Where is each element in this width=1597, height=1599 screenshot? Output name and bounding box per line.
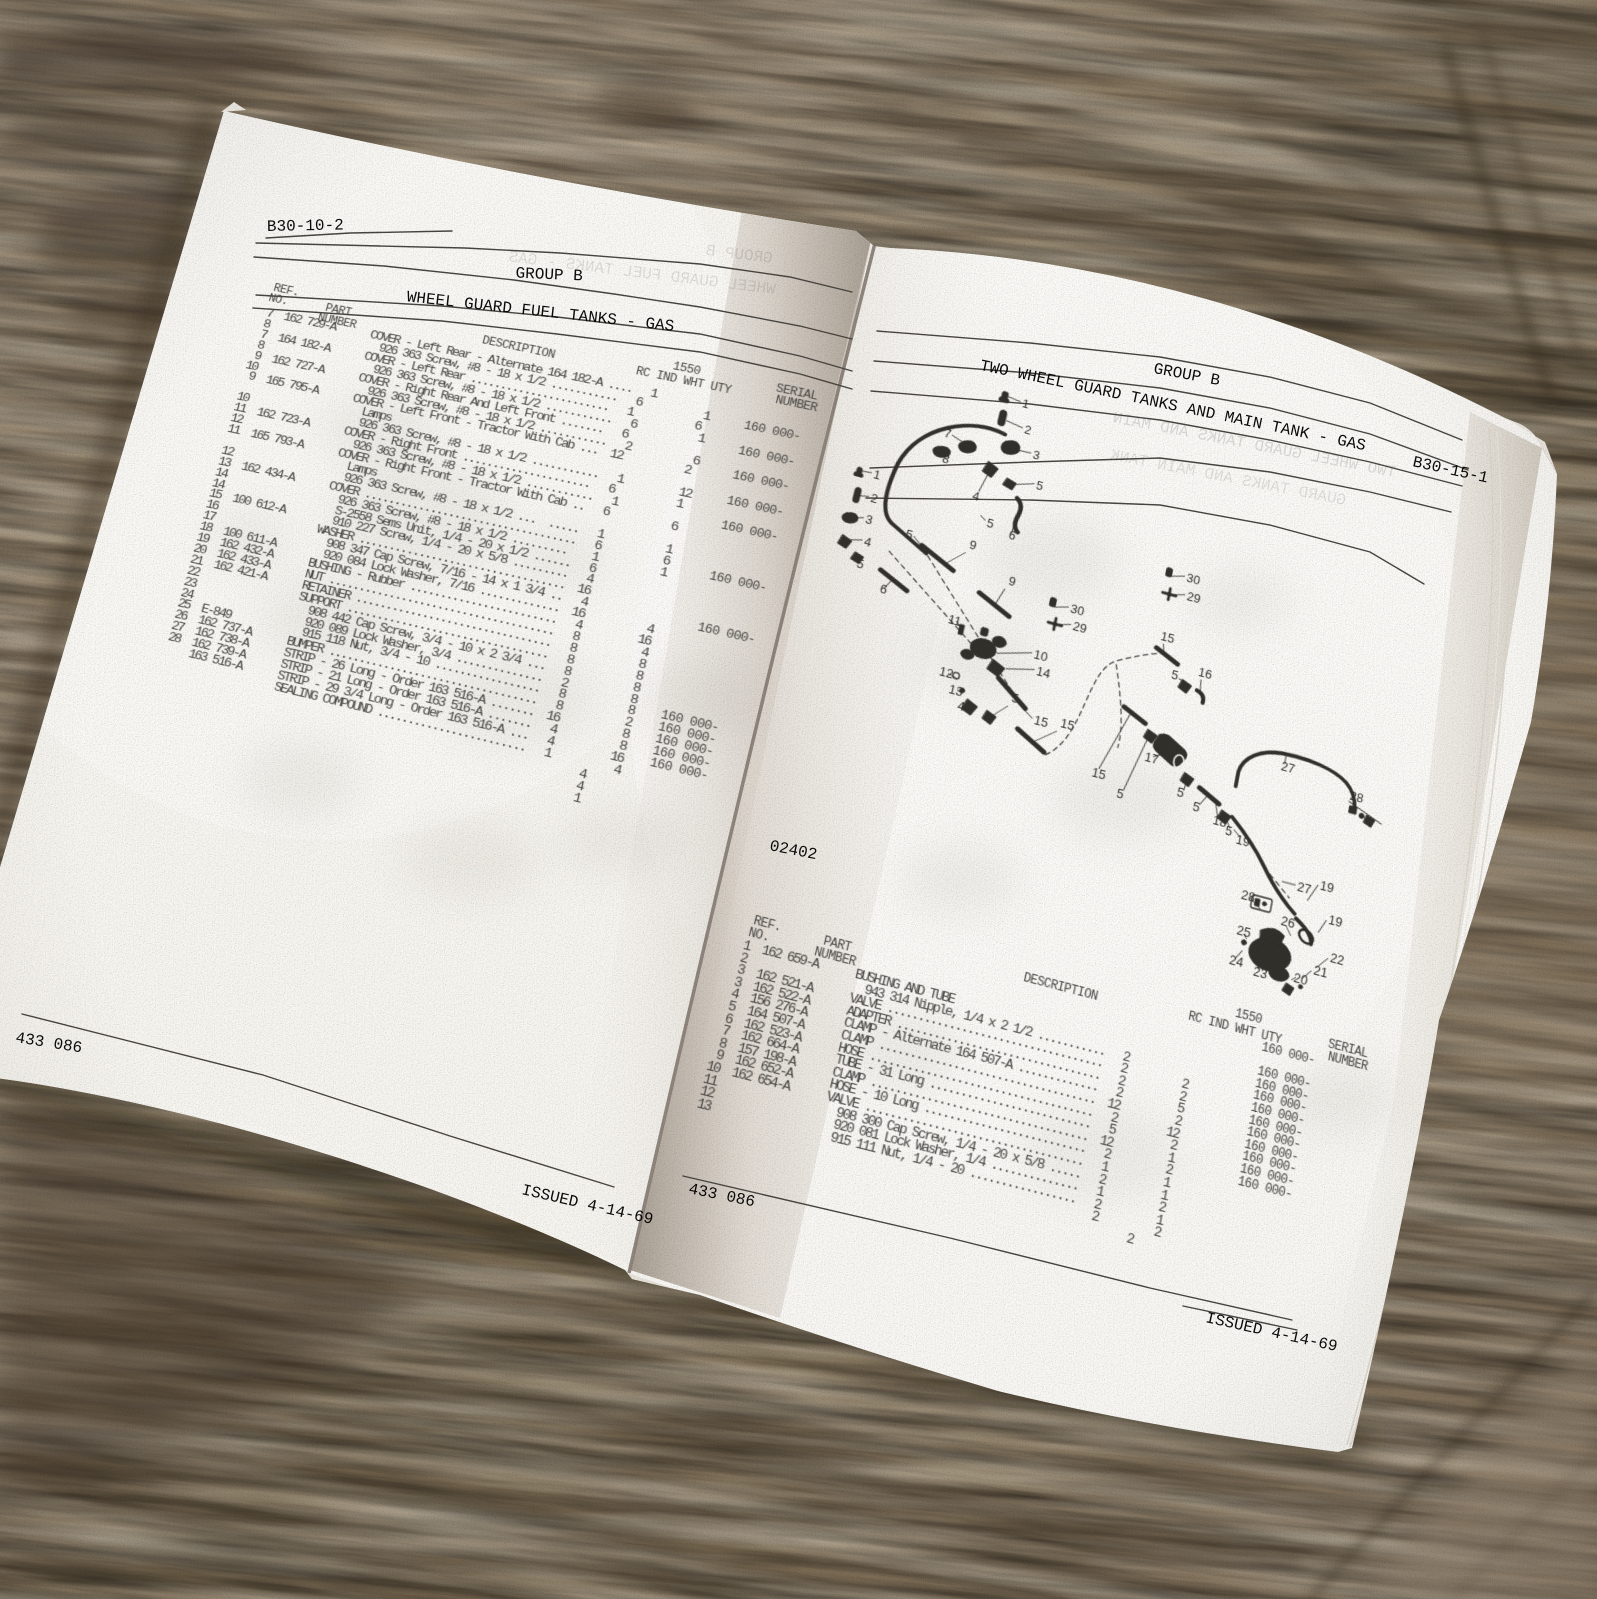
svg-text:1: 1 [872, 467, 882, 482]
svg-text:29: 29 [1186, 589, 1202, 606]
svg-text:15: 15 [1033, 713, 1050, 731]
svg-text:30: 30 [1069, 601, 1086, 619]
svg-text:21: 21 [1312, 963, 1329, 982]
svg-text:20: 20 [1292, 970, 1309, 989]
svg-text:15: 15 [1159, 629, 1176, 647]
svg-text:29: 29 [1072, 619, 1089, 637]
svg-text:23: 23 [1252, 964, 1269, 983]
svg-text:5: 5 [1170, 667, 1180, 683]
svg-text:3: 3 [1032, 448, 1042, 463]
svg-text:6: 6 [1007, 528, 1017, 543]
svg-text:2: 2 [869, 491, 879, 506]
svg-text:10: 10 [1032, 647, 1049, 665]
svg-text:4: 4 [971, 489, 981, 504]
svg-text:5: 5 [1224, 823, 1234, 839]
svg-text:25: 25 [1236, 922, 1253, 940]
svg-text:19: 19 [1319, 878, 1336, 896]
svg-text:5: 5 [1191, 799, 1201, 815]
svg-text:4: 4 [863, 534, 874, 550]
svg-text:15: 15 [1059, 716, 1076, 734]
svg-text:9: 9 [968, 538, 978, 554]
svg-text:5: 5 [985, 516, 995, 531]
svg-text:3: 3 [864, 512, 875, 528]
svg-text:5: 5 [1176, 785, 1186, 801]
svg-text:2: 2 [1023, 423, 1033, 438]
svg-text:14: 14 [1035, 664, 1052, 682]
svg-text:1: 1 [1021, 397, 1031, 412]
svg-text:27: 27 [1296, 879, 1312, 897]
svg-text:9: 9 [1007, 574, 1017, 590]
svg-text:5: 5 [855, 556, 866, 572]
svg-text:7: 7 [943, 426, 953, 441]
svg-text:19: 19 [1327, 912, 1344, 930]
svg-text:22: 22 [1329, 950, 1345, 968]
svg-text:12: 12 [938, 664, 955, 682]
svg-text:13: 13 [947, 682, 964, 700]
svg-text:8: 8 [941, 451, 951, 466]
svg-text:26: 26 [1280, 913, 1297, 931]
svg-text:30: 30 [1185, 571, 1201, 588]
svg-text:16: 16 [1197, 665, 1213, 683]
svg-text:6: 6 [878, 581, 889, 597]
svg-text:15: 15 [1090, 765, 1107, 783]
svg-text:17: 17 [1143, 749, 1159, 767]
svg-text:5: 5 [1115, 786, 1125, 802]
svg-text:19: 19 [1235, 832, 1252, 850]
svg-text:24: 24 [1228, 952, 1245, 971]
svg-text:27: 27 [1280, 759, 1296, 777]
svg-text:5: 5 [1035, 478, 1045, 493]
